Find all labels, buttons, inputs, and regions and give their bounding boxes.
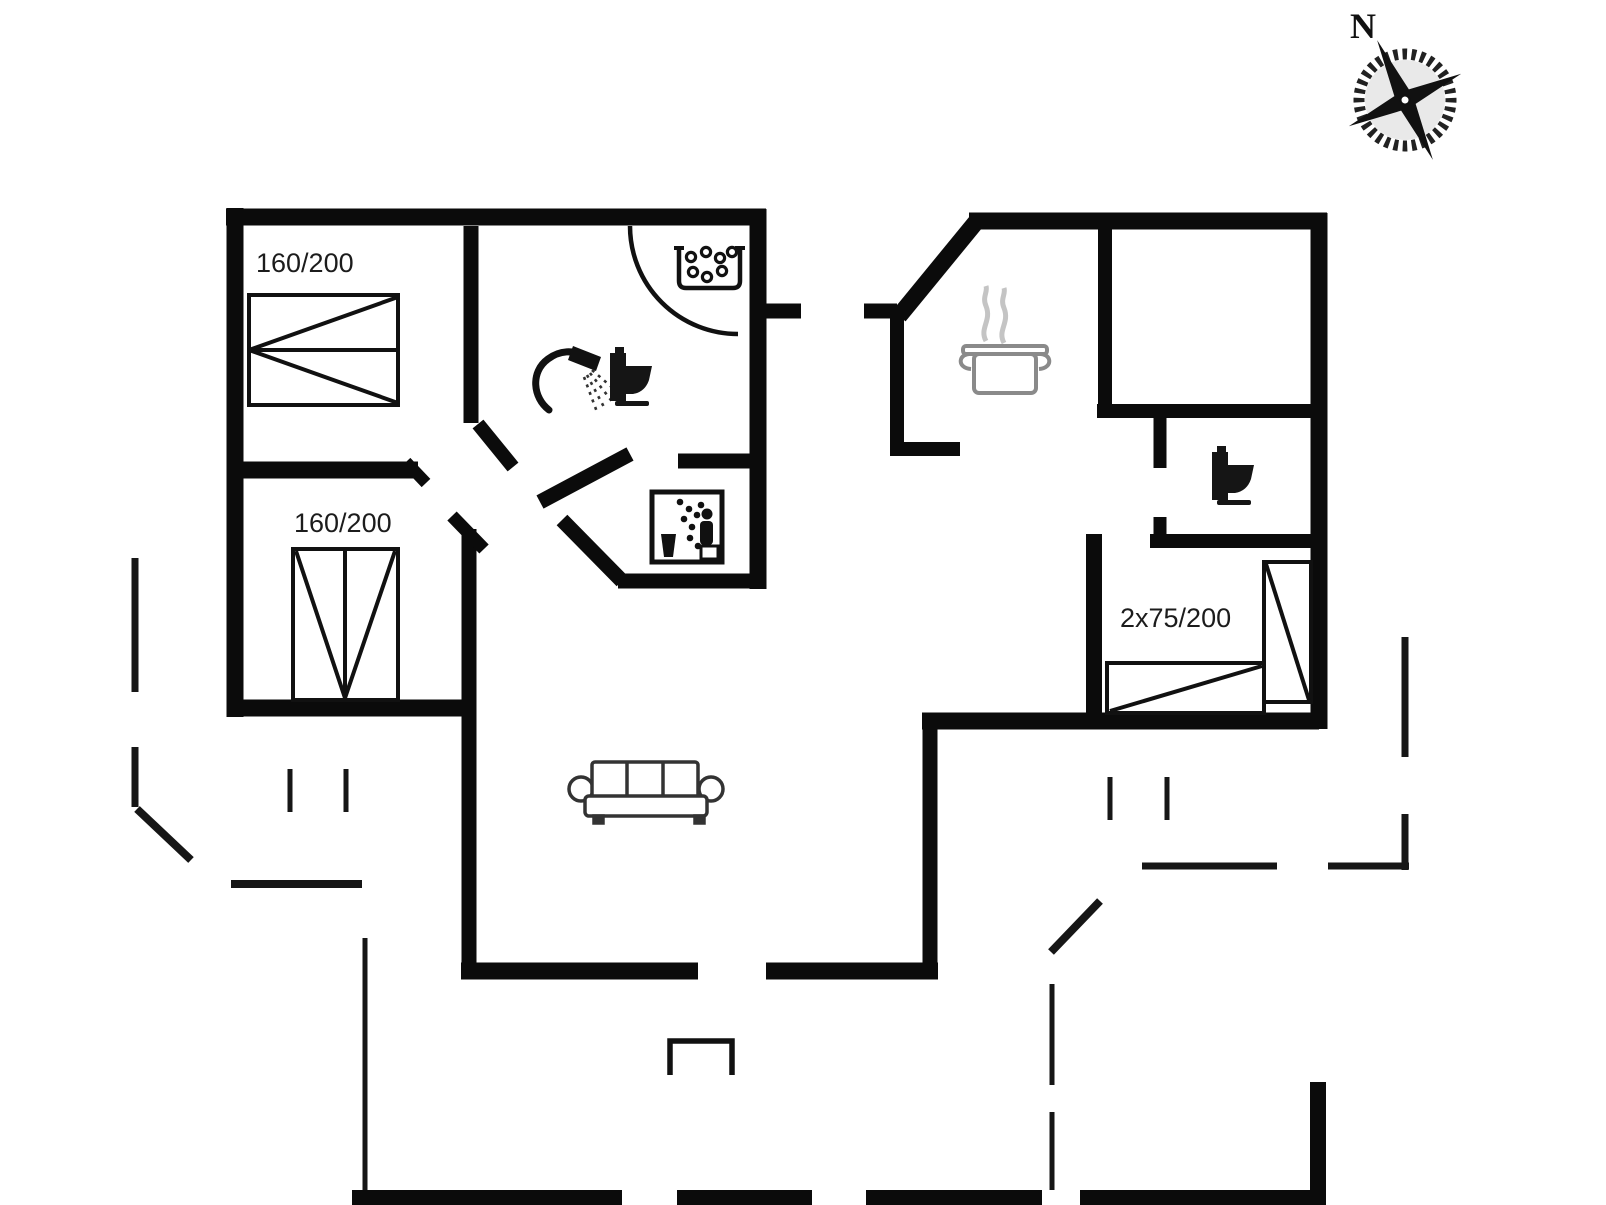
compass-rose-icon: N [1321,6,1489,186]
steam-icon [984,286,1006,343]
toilet-icon [1212,446,1254,505]
entrance-step [670,1041,732,1075]
toilet-icon [610,347,652,406]
floor-plan-page: N 160/200 160/200 2x75/200 [0,0,1606,1205]
floor-plan-drawing: N 160/200 160/200 2x75/200 [0,0,1606,1205]
washbasin-icon [674,247,745,288]
double-bed-icon [249,295,398,405]
bed-size-label: 160/200 [256,248,354,278]
shower-icon [536,346,622,412]
sauna-icon [652,492,722,562]
bed-size-label: 2x75/200 [1120,603,1231,633]
cooking-pot-icon [961,286,1050,393]
compass-north-label: N [1350,6,1376,46]
sofa-icon [569,762,723,823]
bed-size-label: 160/200 [294,508,392,538]
twin-beds-icon [1107,562,1311,713]
site-boundary-south [352,1082,1326,1198]
double-bed-icon [293,549,398,700]
